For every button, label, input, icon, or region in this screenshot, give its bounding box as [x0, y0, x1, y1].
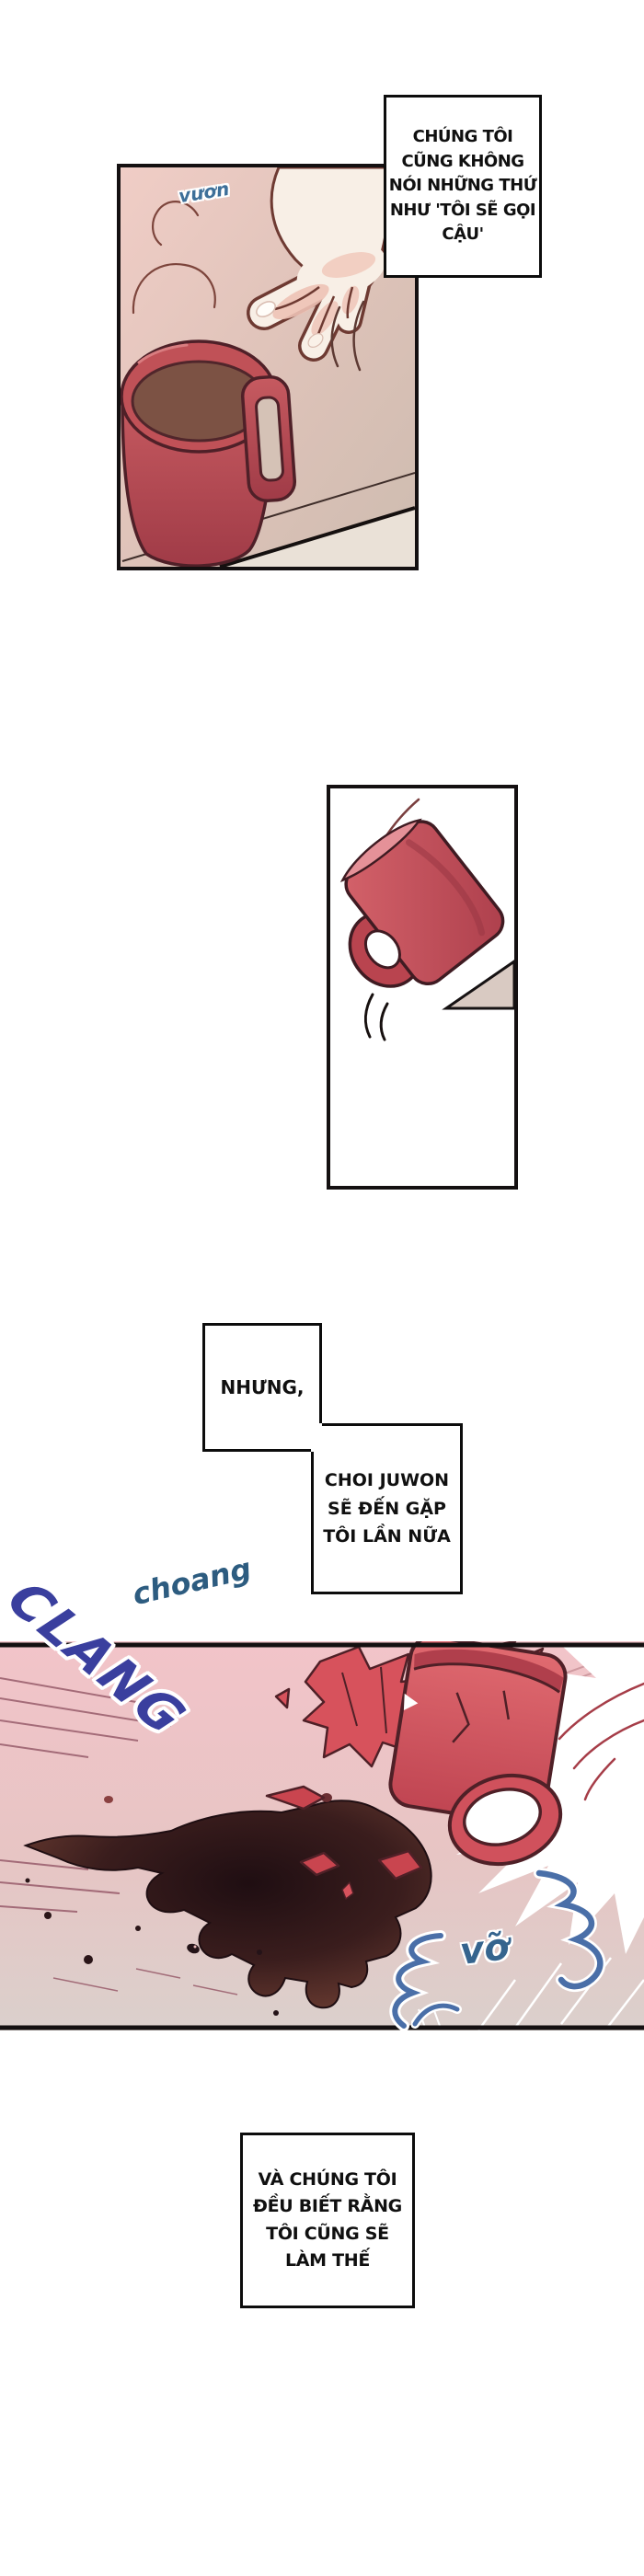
caption-line: ĐỀU BIẾT RẰNG [253, 2193, 402, 2220]
zigzag-right-icon [523, 1868, 607, 1996]
caption-overlap-passage [311, 1423, 322, 1452]
caption-line: NÓI NHỮNG THỨ [389, 174, 536, 199]
caption-line: LÀM THẾ [285, 2248, 370, 2274]
panel-mug-on-table [117, 164, 419, 570]
sfx-vo: vỡ [457, 1926, 512, 1973]
caption-line: NHƯNG, [221, 1376, 305, 1398]
falling-motion-lines [365, 995, 387, 1040]
comic-page: CHÚNG TÔI CŨNG KHÔNG NÓI NHỮNG THỨ NHƯ '… [0, 0, 644, 2576]
caption-line: NHƯ 'TÔI SẼ GỌI [390, 199, 535, 224]
caption-nhung: NHƯNG, [202, 1323, 322, 1452]
caption-top: CHÚNG TÔI CŨNG KHÔNG NÓI NHỮNG THỨ NHƯ '… [384, 95, 542, 278]
sfx-choang: choang [129, 1551, 254, 1612]
falling-mug-illustration [330, 788, 514, 1186]
mug-table-illustration [121, 167, 415, 567]
caption-line: VÀ CHÚNG TÔI [259, 2167, 397, 2193]
caption-choi-juwon: CHOI JUWON SẼ ĐẾN GẶP TÔI LẦN NỮA [311, 1423, 463, 1594]
caption-line: CŨNG KHÔNG [401, 150, 523, 175]
caption-line: CHÚNG TÔI [413, 125, 513, 150]
caption-line: CHOI JUWON [325, 1466, 449, 1494]
caption-line: TÔI CŨNG SẼ [266, 2221, 389, 2248]
caption-line: TÔI LẦN NỮA [323, 1523, 451, 1550]
panel-mug-falling [327, 785, 518, 1190]
caption-bottom: VÀ CHÚNG TÔI ĐỀU BIẾT RẰNG TÔI CŨNG SẼ L… [240, 2133, 415, 2308]
mug-handle-hole [256, 397, 283, 480]
caption-line: SẼ ĐẾN GẶP [328, 1495, 446, 1523]
zigzag-small-icon [411, 1998, 463, 2035]
caption-line: CẬU' [442, 223, 483, 247]
